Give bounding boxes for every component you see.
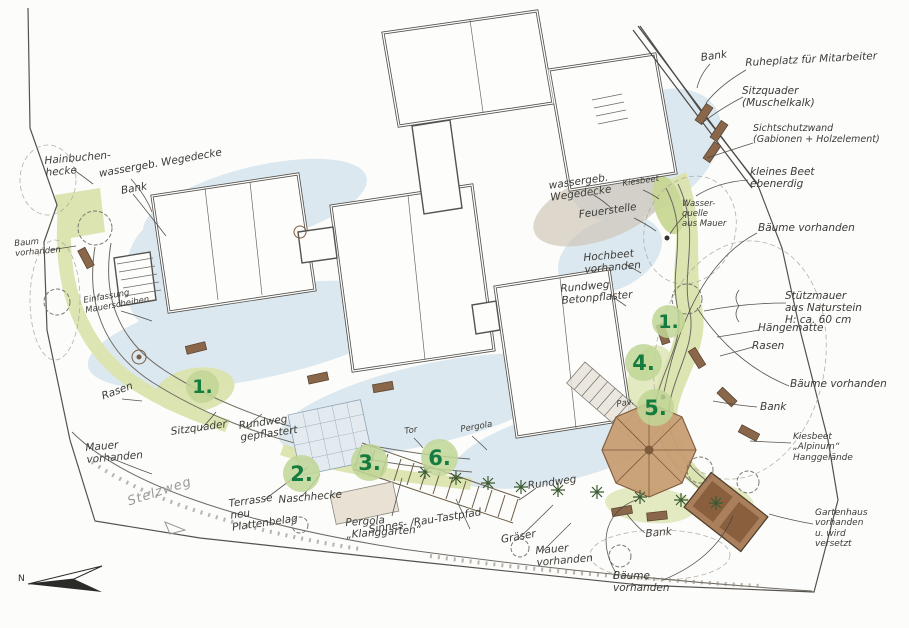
street-arrow-icon (165, 522, 185, 534)
marker-5: 5. (637, 389, 674, 426)
marker-2: 2. (283, 455, 320, 492)
marker-1-west: 1. (186, 370, 219, 403)
site-plan: N Bank Ruheplatz für Mitarbeiter Sitzqua… (0, 0, 909, 628)
north-arrow-icon: N (18, 566, 102, 592)
deck (330, 482, 399, 525)
plan-drawing: N (0, 0, 909, 628)
marker-3: 3. (351, 444, 388, 481)
north-label: N (18, 574, 25, 584)
marker-6: 6. (421, 439, 458, 476)
marker-4: 4. (625, 344, 662, 381)
marker-1-ost: 1. (652, 305, 685, 338)
